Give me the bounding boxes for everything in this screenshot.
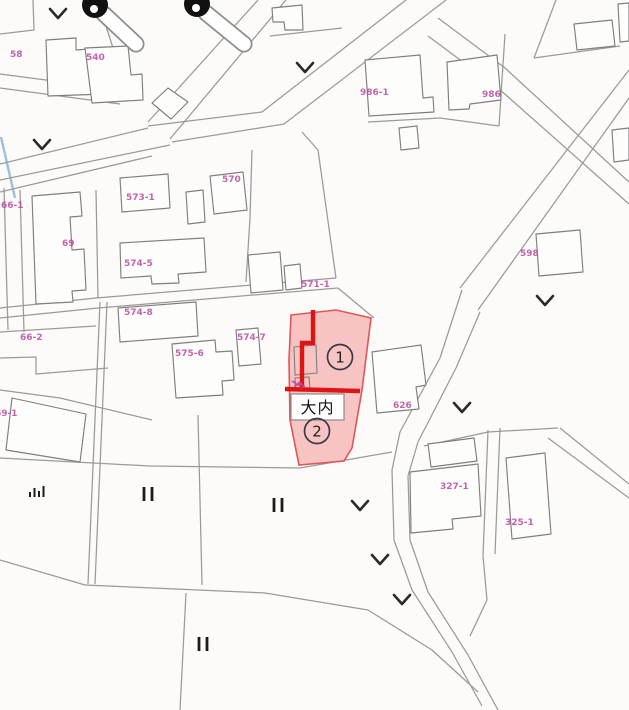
road-or-parcel-line (198, 415, 202, 585)
road-or-parcel-line (483, 430, 488, 556)
road-or-parcel-line (368, 118, 499, 126)
survey-point-center (192, 4, 200, 12)
red-boundary-line (285, 389, 360, 391)
field-chevron-symbol (394, 595, 410, 604)
building-outline (272, 5, 303, 30)
building-outline (612, 128, 629, 162)
road-or-parcel-line (95, 302, 107, 584)
building-outline (284, 264, 302, 290)
owner-name-label: 大内 (300, 398, 334, 417)
circled-number-label: 1 (335, 349, 345, 367)
field-chevron-symbol (50, 9, 66, 18)
building-outline (152, 88, 188, 119)
field-chevron-symbol (537, 296, 553, 305)
building-outline (32, 192, 86, 304)
road-or-parcel-line (270, 28, 342, 36)
road-or-parcel-line (0, 357, 108, 374)
field-chevron-symbol (352, 501, 368, 510)
road-or-parcel-line (470, 556, 487, 636)
lot-number-label: 325-1 (505, 518, 534, 528)
road-or-parcel-line (0, 0, 34, 34)
road-or-parcel-line (172, 124, 284, 142)
building-outline (447, 55, 501, 110)
road-or-parcel-line (20, 190, 24, 332)
lot-number-label: 69 (62, 239, 75, 249)
building-outline (365, 55, 434, 116)
lot-number-label: 986-1 (360, 88, 389, 98)
road-or-parcel-line (302, 132, 336, 278)
road-or-parcel-line (560, 428, 629, 484)
lot-number-label: 574-5 (124, 259, 153, 269)
road-or-parcel-line (180, 593, 186, 710)
road-or-parcel-line (88, 302, 100, 584)
road-or-parcel-line (0, 128, 148, 164)
lot-number-label: 571-1 (301, 280, 330, 290)
lot-number-label: 327-1 (440, 482, 469, 492)
lot-number-label: 986 (482, 90, 501, 100)
lot-number-label: 626 (393, 401, 412, 411)
lot-number-label: 573-1 (126, 193, 155, 203)
field-chevron-symbol (454, 403, 470, 412)
road-or-parcel-line (495, 428, 500, 554)
building-outline (428, 438, 477, 467)
building-outline (574, 20, 615, 50)
building-outline (410, 464, 481, 533)
lot-number-label: 540 (86, 53, 105, 63)
building-outline (6, 398, 86, 462)
cadastral-map-image: 大内12 58540986-1986570573-166-169598574-5… (0, 0, 629, 710)
circled-number-label: 2 (312, 423, 322, 441)
lot-number-label: 66-2 (20, 333, 43, 343)
building-outline (536, 230, 583, 276)
highlighted-parcel-layer: 大内12 (285, 310, 371, 465)
building-outline (186, 190, 205, 224)
lot-number-label: 570 (222, 175, 241, 185)
field-chevron-symbol (297, 63, 313, 72)
building-outline (399, 126, 419, 150)
road-or-parcel-line (478, 98, 629, 310)
field-chevron-symbol (34, 140, 50, 149)
road-or-parcel-line (0, 145, 170, 180)
road-or-parcel-line (534, 0, 556, 58)
road-or-parcel-line (96, 190, 98, 298)
building-outline (248, 252, 283, 293)
lot-number-label: 575-6 (175, 349, 204, 359)
building-outline (618, 3, 629, 42)
lot-number-label: 66-1 (1, 201, 24, 211)
survey-point-center (90, 5, 98, 13)
lot-number-label: 574-7 (237, 333, 266, 343)
lot-number-label: 69-1 (0, 409, 18, 419)
lot-number-label: 58 (10, 50, 23, 60)
road-or-parcel-line (499, 34, 505, 126)
lot-number-label: 574-8 (124, 308, 153, 318)
road-or-parcel-line (0, 326, 96, 332)
road-or-parcel-line (548, 438, 629, 498)
field-chevron-symbol (372, 555, 388, 564)
cadastral-map-page: 大内12 58540986-1986570573-166-169598574-5… (0, 0, 629, 710)
road-or-parcel-line (0, 560, 85, 585)
lot-number-label: 598 (520, 249, 539, 259)
